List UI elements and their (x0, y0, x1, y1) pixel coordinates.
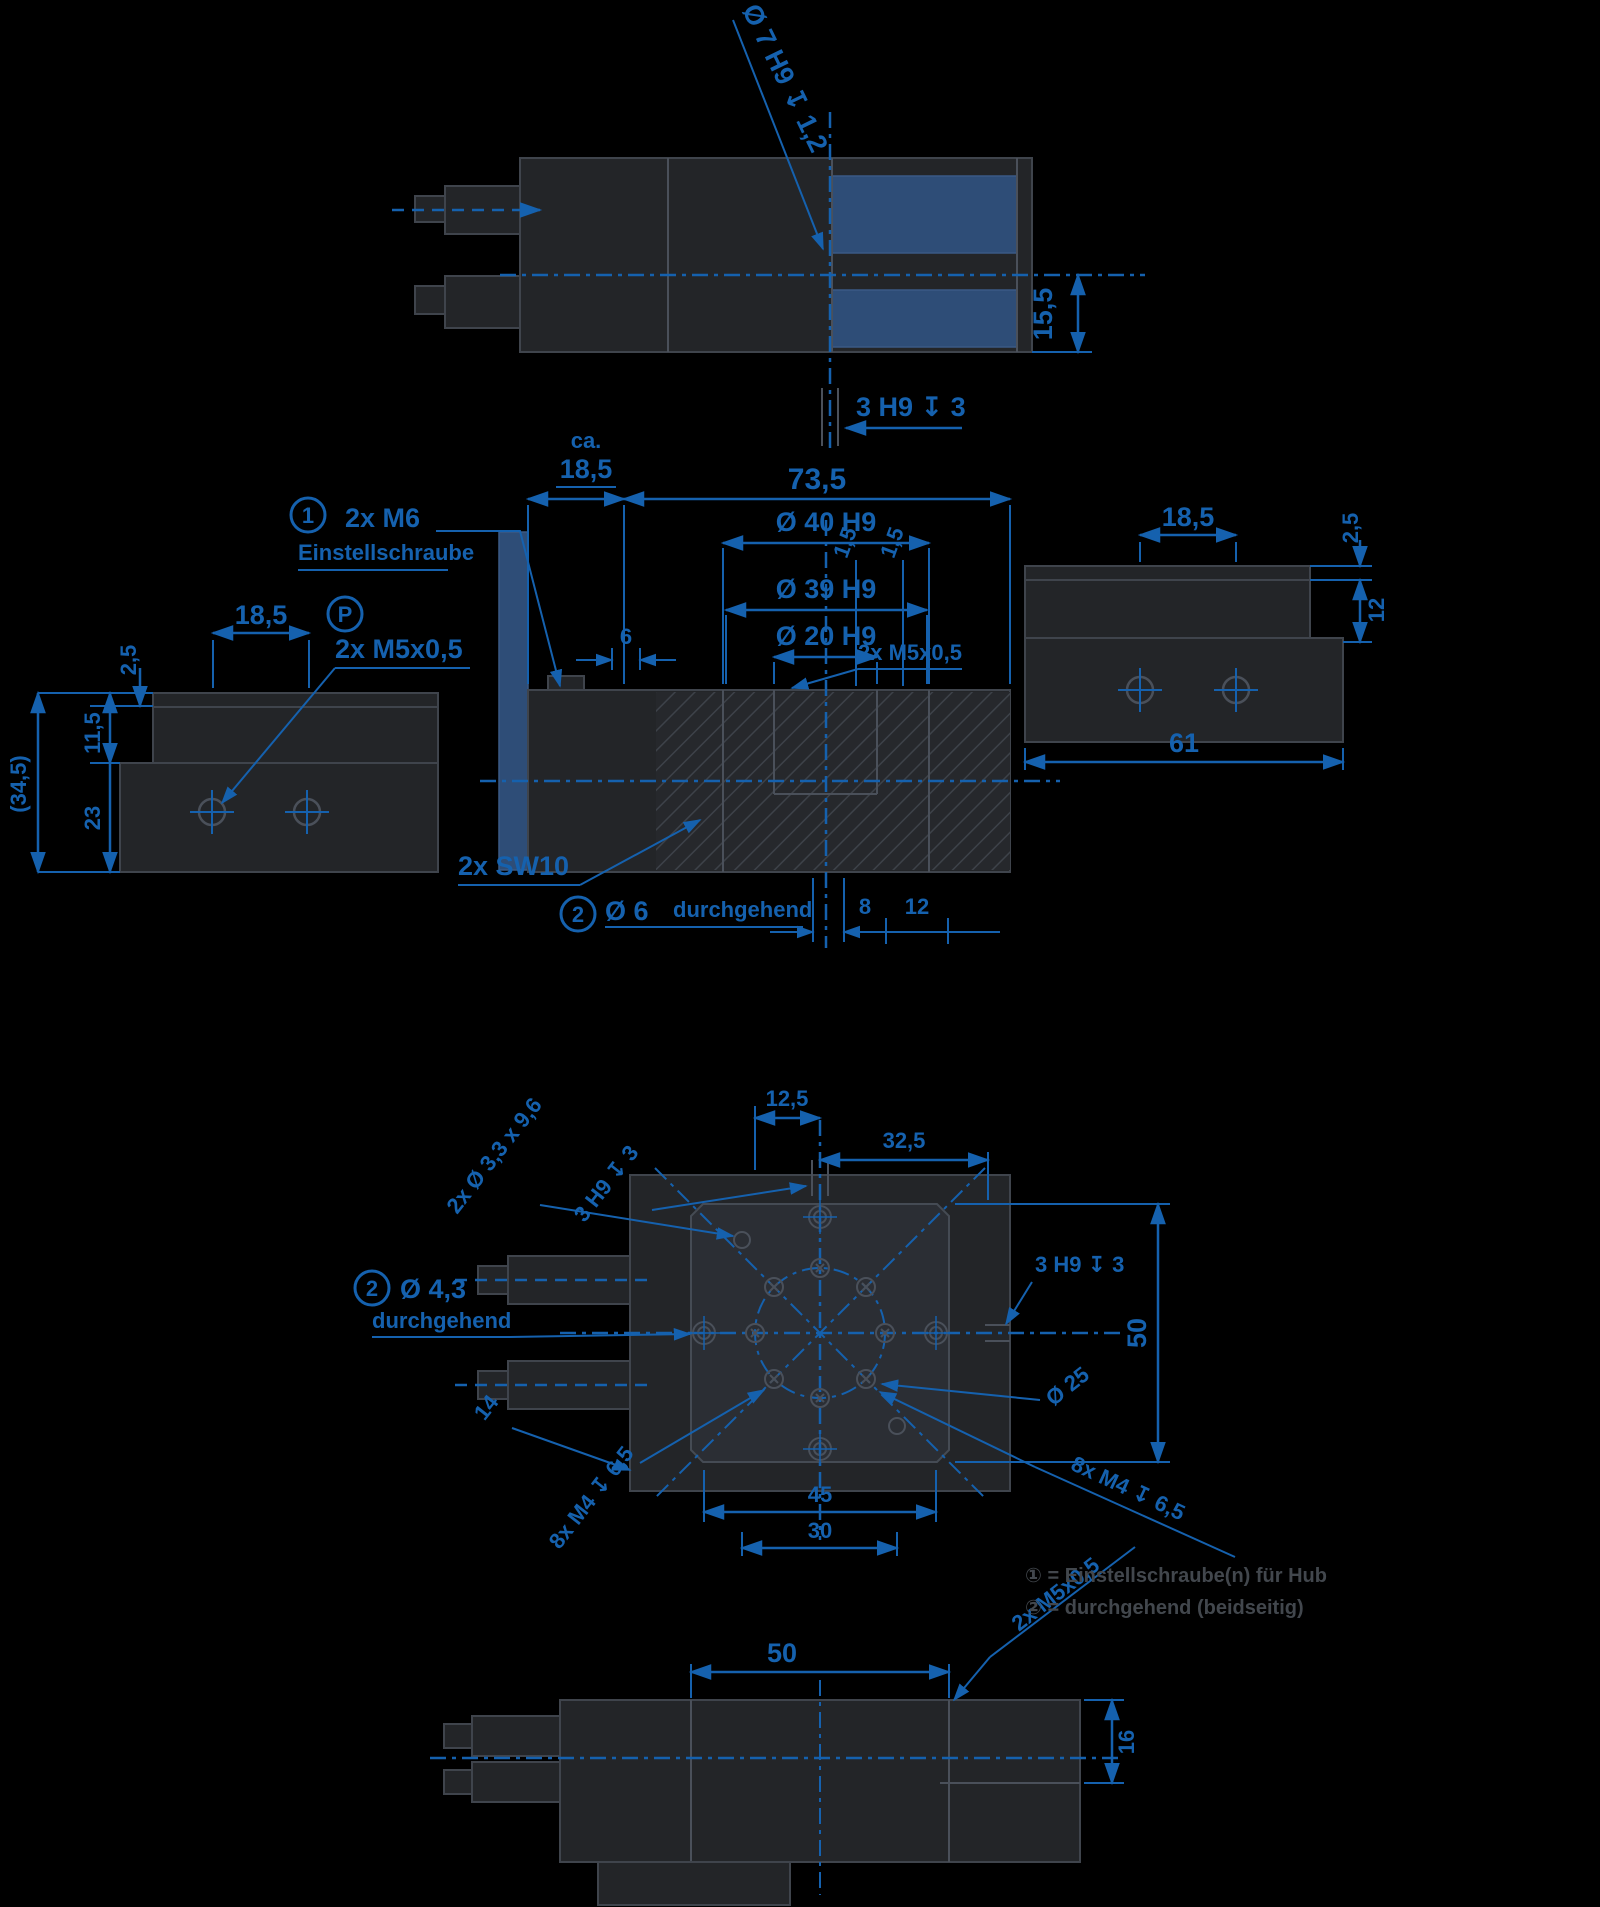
through-hole-label: Ø 6 (605, 896, 649, 926)
slot-label-right: 3 H9 ↧ 3 (1035, 1252, 1124, 1277)
connector-stub (445, 276, 520, 328)
dim-16: 16 (1114, 1730, 1139, 1754)
dim-length: 73,5 (788, 463, 846, 496)
slide-edge-highlight (499, 532, 528, 870)
through-hole-sublabel: durchgehend (372, 1308, 511, 1333)
connector-nipple (415, 286, 447, 314)
through-hole-sublabel: durchgehend (673, 897, 812, 922)
connector-stub (472, 1716, 560, 1756)
height-dim-label: 15,5 (1028, 288, 1058, 341)
bolt-pattern-view: 12,5 32,5 2x Ø 3,3 x 9,6 3 H9 ↧ 3 3 H9 ↧… (355, 1086, 1235, 1557)
slide-highlight-lower (832, 290, 1017, 347)
dim-11-5: 11,5 (80, 712, 105, 754)
slide-highlight-upper (832, 176, 1017, 253)
dim-6: 6 (620, 624, 632, 649)
dim-23: 23 (80, 806, 105, 830)
dim-total: (34,5) (6, 755, 31, 812)
dim-8: 8 (859, 894, 871, 919)
technical-drawing-page: Ø 7 H9 ↧ 1,2 15,5 3 H9 ↧ 3 ca. 18,5 73,5 (0, 0, 1600, 1907)
dowel-holes-callout: 2x Ø 3,3 x 9,6 (441, 1093, 547, 1218)
dim-50: 50 (1122, 1318, 1152, 1348)
dim-2-5: 2,5 (1338, 513, 1363, 544)
bore-callout-label: Ø 7 H9 ↧ 1,2 (736, 0, 833, 157)
port-label: 2x M5x0,5 (858, 640, 962, 665)
callout-number-2: 2 (572, 902, 584, 927)
dim-45: 45 (808, 1482, 832, 1507)
dim-32-5: 32,5 (883, 1128, 926, 1153)
dim-12: 12 (905, 894, 929, 919)
port-leader (954, 1657, 990, 1700)
connector-stub (472, 1762, 560, 1802)
dim-ca: 18,5 (560, 454, 613, 484)
dim-15b: 1,5 (875, 524, 909, 561)
dim-ca-prefix: ca. (571, 428, 602, 453)
legend-line-1: ① = Einstellschraube(n) für Hub (1025, 1565, 1327, 1587)
screw-pattern-label-left: 8x M4 ↧ 6,5 (544, 1441, 639, 1553)
dim-12-5: 12,5 (766, 1086, 809, 1111)
upper-block (1025, 580, 1310, 638)
lower-block (120, 763, 438, 872)
top-side-view: Ø 7 H9 ↧ 1,2 15,5 3 H9 ↧ 3 (392, 0, 1145, 448)
legend-line-2: ② = durchgehend (beidseitig) (1025, 1597, 1304, 1619)
wrench-flats-label: 2x SW10 (458, 851, 569, 881)
port-thread-label: 2x M5x0,5 (335, 634, 463, 664)
right-end-view: 18,5 2,5 12 61 (1025, 502, 1389, 770)
dim-width: 61 (1169, 728, 1199, 758)
dim-top: 18,5 (1162, 502, 1215, 532)
dimension-drawing-canvas: Ø 7 H9 ↧ 1,2 15,5 3 H9 ↧ 3 ca. 18,5 73,5 (0, 0, 1600, 1907)
dim-50: 50 (767, 1638, 797, 1668)
callout-number-1: 1 (302, 503, 314, 528)
slide-plate-edge (1025, 566, 1310, 580)
dim-d39: Ø 39 H9 (776, 574, 877, 604)
connector-nipple (444, 1770, 472, 1794)
left-end-view: 18,5 2,5 11,5 23 (34,5) P 2x M5x0,5 (6, 597, 470, 872)
callout-number-2: 2 (366, 1276, 378, 1301)
adjust-screw-label: 2x M6 (345, 503, 420, 533)
slide-plate-edge (153, 693, 438, 707)
adjust-screw-head (548, 676, 584, 690)
dim-2-5: 2,5 (116, 645, 141, 676)
lower-block (1025, 638, 1343, 742)
through-hole-label: Ø 4,3 (400, 1274, 466, 1304)
tongue (598, 1862, 790, 1905)
dim-top: 18,5 (235, 600, 288, 630)
dim-12: 12 (1364, 598, 1389, 622)
slot-dim-label: 3 H9 ↧ 3 (856, 392, 966, 422)
bolt-circle-label: Ø 25 (1041, 1362, 1094, 1411)
dim-30: 30 (808, 1518, 832, 1543)
connector-nipple (444, 1724, 472, 1748)
callout-letter-p: P (338, 602, 353, 627)
adjust-screw-sublabel: Einstellschraube (298, 540, 474, 565)
